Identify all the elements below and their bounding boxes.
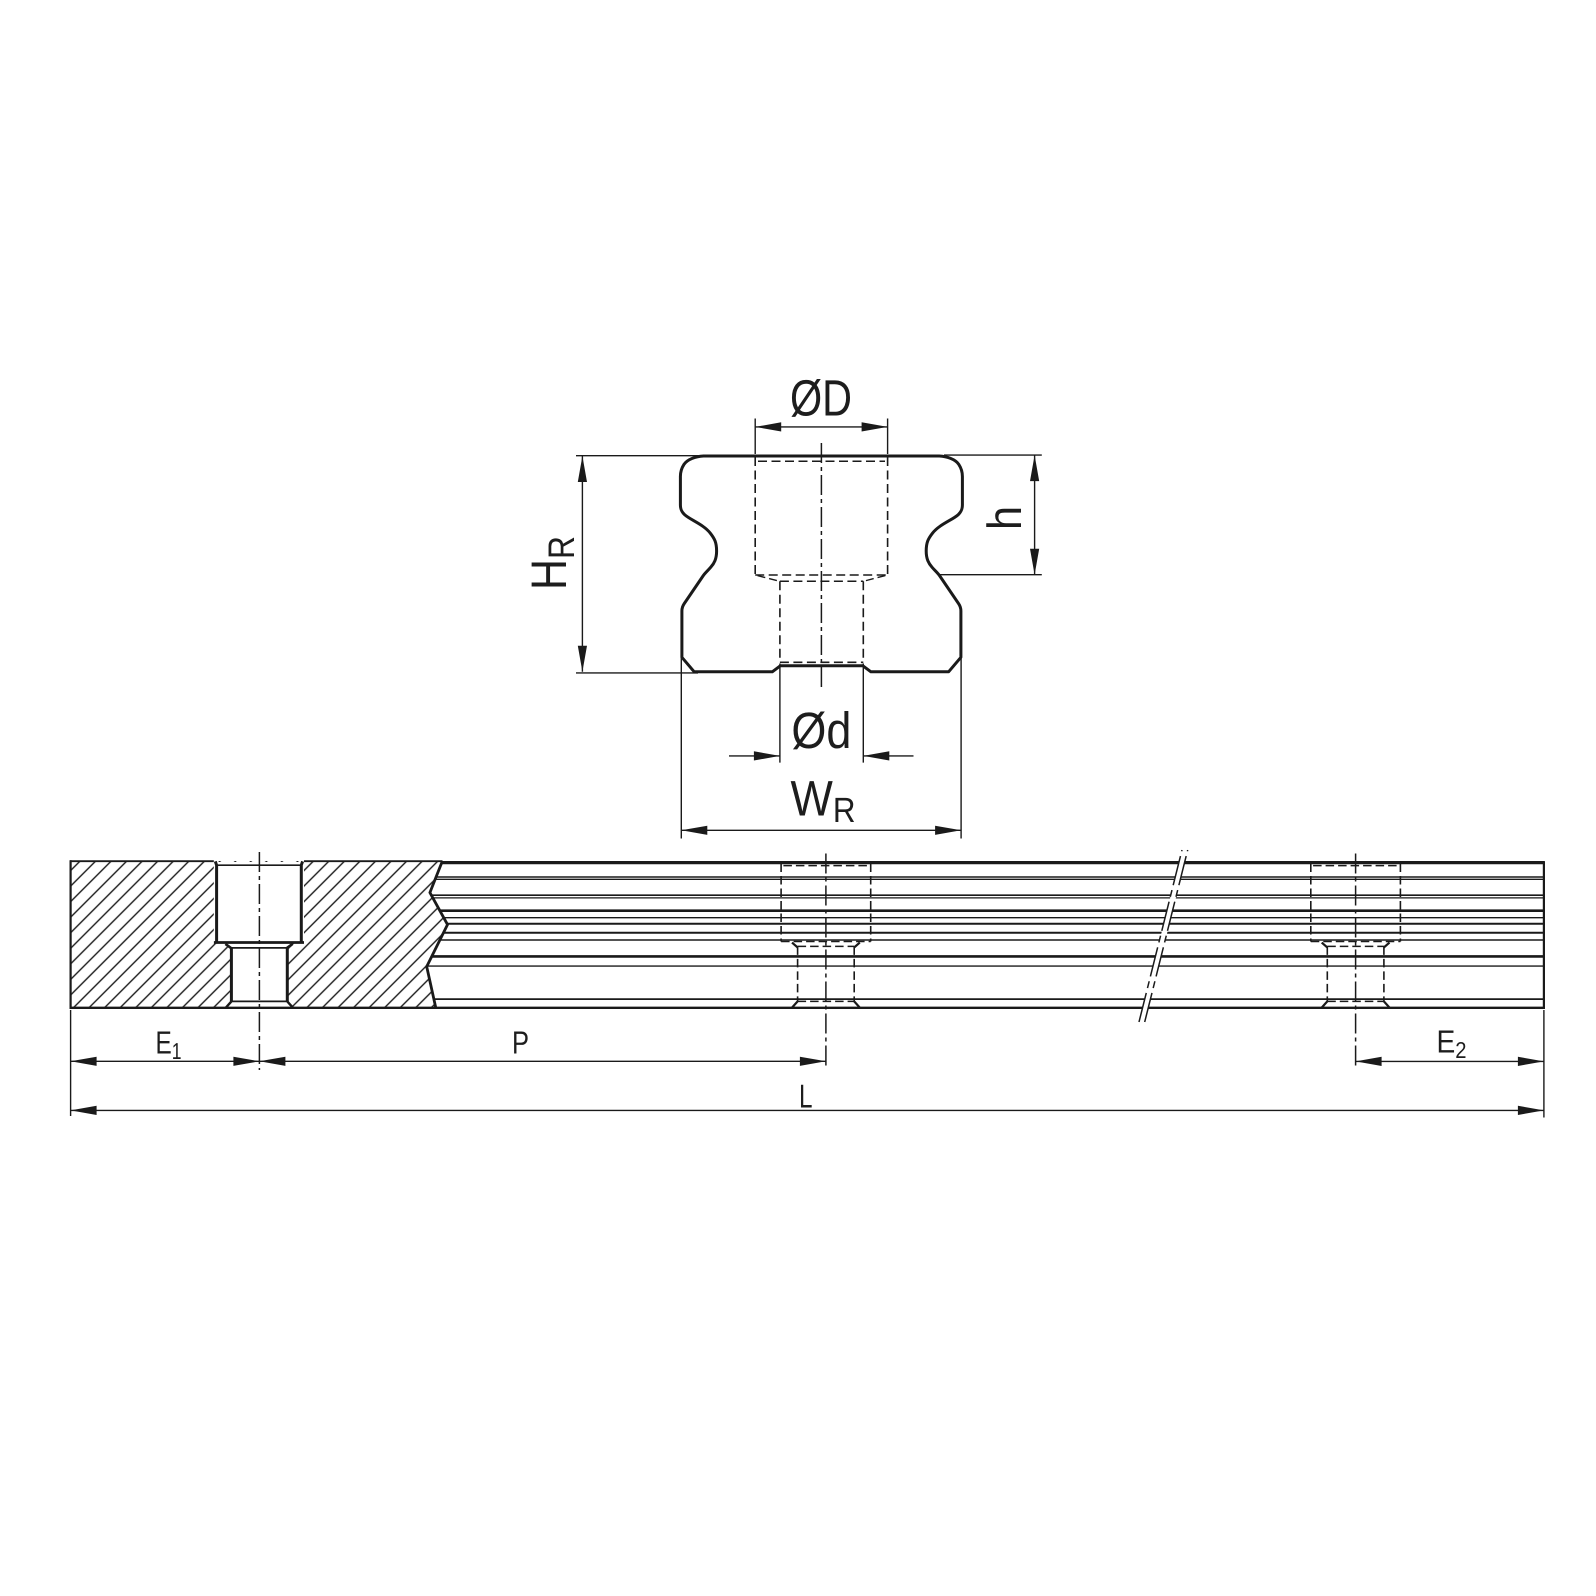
svg-text:L: L xyxy=(799,1078,813,1115)
svg-text:ØD: ØD xyxy=(790,370,852,427)
svg-text:E2: E2 xyxy=(1437,1024,1467,1064)
svg-text:HR: HR xyxy=(521,536,582,590)
svg-text:Ød: Ød xyxy=(791,702,851,759)
svg-text:P: P xyxy=(512,1024,529,1060)
svg-text:E1: E1 xyxy=(156,1024,182,1064)
svg-text:h: h xyxy=(979,506,1032,530)
svg-text:WR: WR xyxy=(791,770,856,830)
